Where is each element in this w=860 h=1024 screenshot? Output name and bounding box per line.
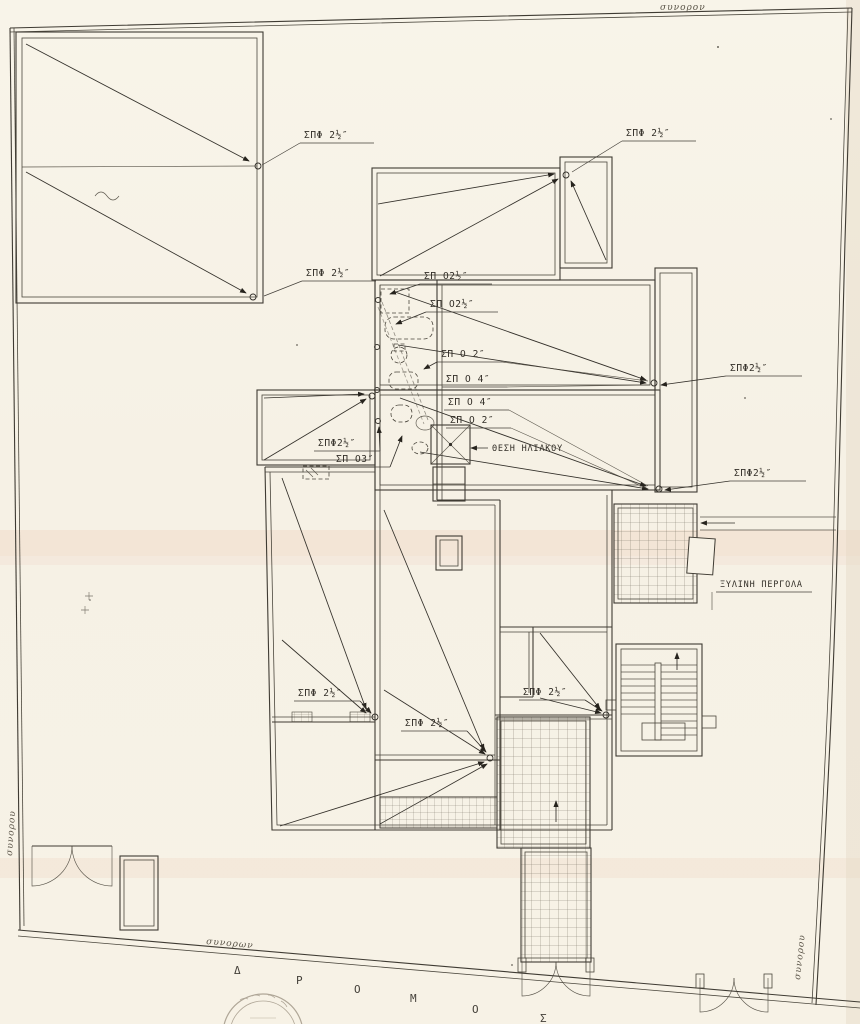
pipe-label: ΣΠΦ2½″	[661, 363, 802, 385]
road-letter: Ο	[472, 1003, 479, 1016]
gate-leaf-arc	[72, 846, 112, 886]
road-letter: Δ	[234, 964, 241, 977]
pipe-label-text: ΣΠ Ο 2″	[441, 349, 485, 360]
site-boundary	[10, 8, 860, 1008]
pergola-post-box	[687, 537, 715, 575]
waste-pipe-run	[382, 302, 428, 420]
pipe-label-text: ΣΠΦ2½″	[730, 363, 768, 374]
pipe-label-text: ΣΠΦ 2½″	[523, 687, 567, 698]
garage-roof	[16, 32, 263, 303]
road-letter: Μ	[410, 992, 417, 1005]
wall-opening	[350, 712, 370, 722]
boundary-label-right: συνορου	[793, 934, 808, 980]
staircase	[606, 644, 716, 756]
gate-pillar	[120, 856, 158, 930]
road-letter: Ρ	[296, 974, 303, 987]
road-name-letters: Δ Ρ Ο Μ Ο Σ	[234, 964, 547, 1024]
tiled-walkways	[497, 717, 591, 962]
wooden-pergola	[614, 504, 836, 610]
middle-roof-bands	[375, 268, 697, 492]
pipe-label: ΣΠ Ο2½″	[396, 299, 498, 324]
bathroom-fixtures	[375, 289, 435, 454]
boundary-label-top: συνορον	[660, 3, 706, 13]
site-plan-drawing: ΣΠΦ 2½″ ΣΠΦ 2½″ ΣΠΦ 2½″ ΣΠ Ο2½″ ΣΠ Ο2½″	[0, 0, 860, 1024]
pipe-label-text: ΣΠ Ο2½″	[430, 299, 474, 310]
pipe-label-text: ΣΠΦ 2½″	[304, 130, 348, 141]
pipe-label: ΣΠΦ2½″	[665, 468, 806, 490]
left-small-roof	[257, 390, 375, 479]
boundary-label-left: συνορου	[5, 810, 18, 856]
pipe-label: ΣΠΦ 2½″	[262, 130, 374, 165]
door-leaf-arc	[734, 978, 768, 1012]
pipe-labels: ΣΠΦ 2½″ ΣΠΦ 2½″ ΣΠΦ 2½″ ΣΠ Ο2½″ ΣΠ Ο2½″	[262, 128, 806, 752]
boundary-label-bottom: συνορων	[206, 937, 254, 951]
wall-opening	[292, 712, 312, 722]
pipe-label-text: ΣΠΦ 2½″	[405, 718, 449, 729]
pipe-label: ΣΠΦ 2½″	[264, 268, 376, 296]
pergola-label: ΞΥΛΙΝΗ ΠΕΡΓΟΛΑ	[720, 580, 803, 590]
pipe-label-text: ΣΠΦ2½″	[734, 468, 772, 479]
seal-stamp	[223, 994, 303, 1024]
pipe-label: ΣΠ Ο2½″	[390, 271, 492, 294]
toilet-outline	[391, 405, 412, 422]
pipe-label-text: ΣΠΦ 2½″	[298, 688, 342, 699]
tiled-strip	[380, 797, 497, 828]
pipe-label-text: ΣΠΦ 2½″	[306, 268, 350, 279]
dashed-fixture-box	[303, 466, 329, 479]
gate-leaf-arc	[32, 846, 72, 886]
door-leaf-arc	[522, 962, 556, 996]
pencil-squiggle-mark	[95, 192, 119, 200]
sink-outline	[389, 372, 418, 389]
pipe-label-text: ΣΠ Ο2½″	[424, 271, 468, 282]
pipe-label-text: ΣΠΦ 2½″	[626, 128, 670, 139]
pipe-label-text: ΣΠ Ο3″	[336, 454, 374, 465]
road-letter: Ο	[354, 983, 361, 996]
pipe-label-text: ΣΠΦ2½″	[318, 438, 356, 449]
solar-heater-label: ΘΕΣΗ ΗΛΙΑΚΟΥ	[492, 444, 563, 454]
scanned-plan-page: ΣΠΦ 2½″ ΣΠΦ 2½″ ΣΠΦ 2½″ ΣΠ Ο2½″ ΣΠ Ο2½″	[0, 0, 860, 1024]
pipe-label: ΣΠΦ 2½″	[519, 687, 602, 711]
pipe-label-text: ΣΠ Ο 2″	[450, 415, 494, 426]
pipe-label-text: ΣΠ Ο 4″	[448, 397, 492, 408]
gates-and-doors	[32, 846, 772, 1012]
upper-roof-block	[372, 157, 612, 280]
pipe-label-text: ΣΠ Ο 4″	[446, 374, 490, 385]
road-letter: Σ	[540, 1012, 547, 1024]
pipe-label: ΣΠΦ 2½″	[572, 128, 696, 172]
